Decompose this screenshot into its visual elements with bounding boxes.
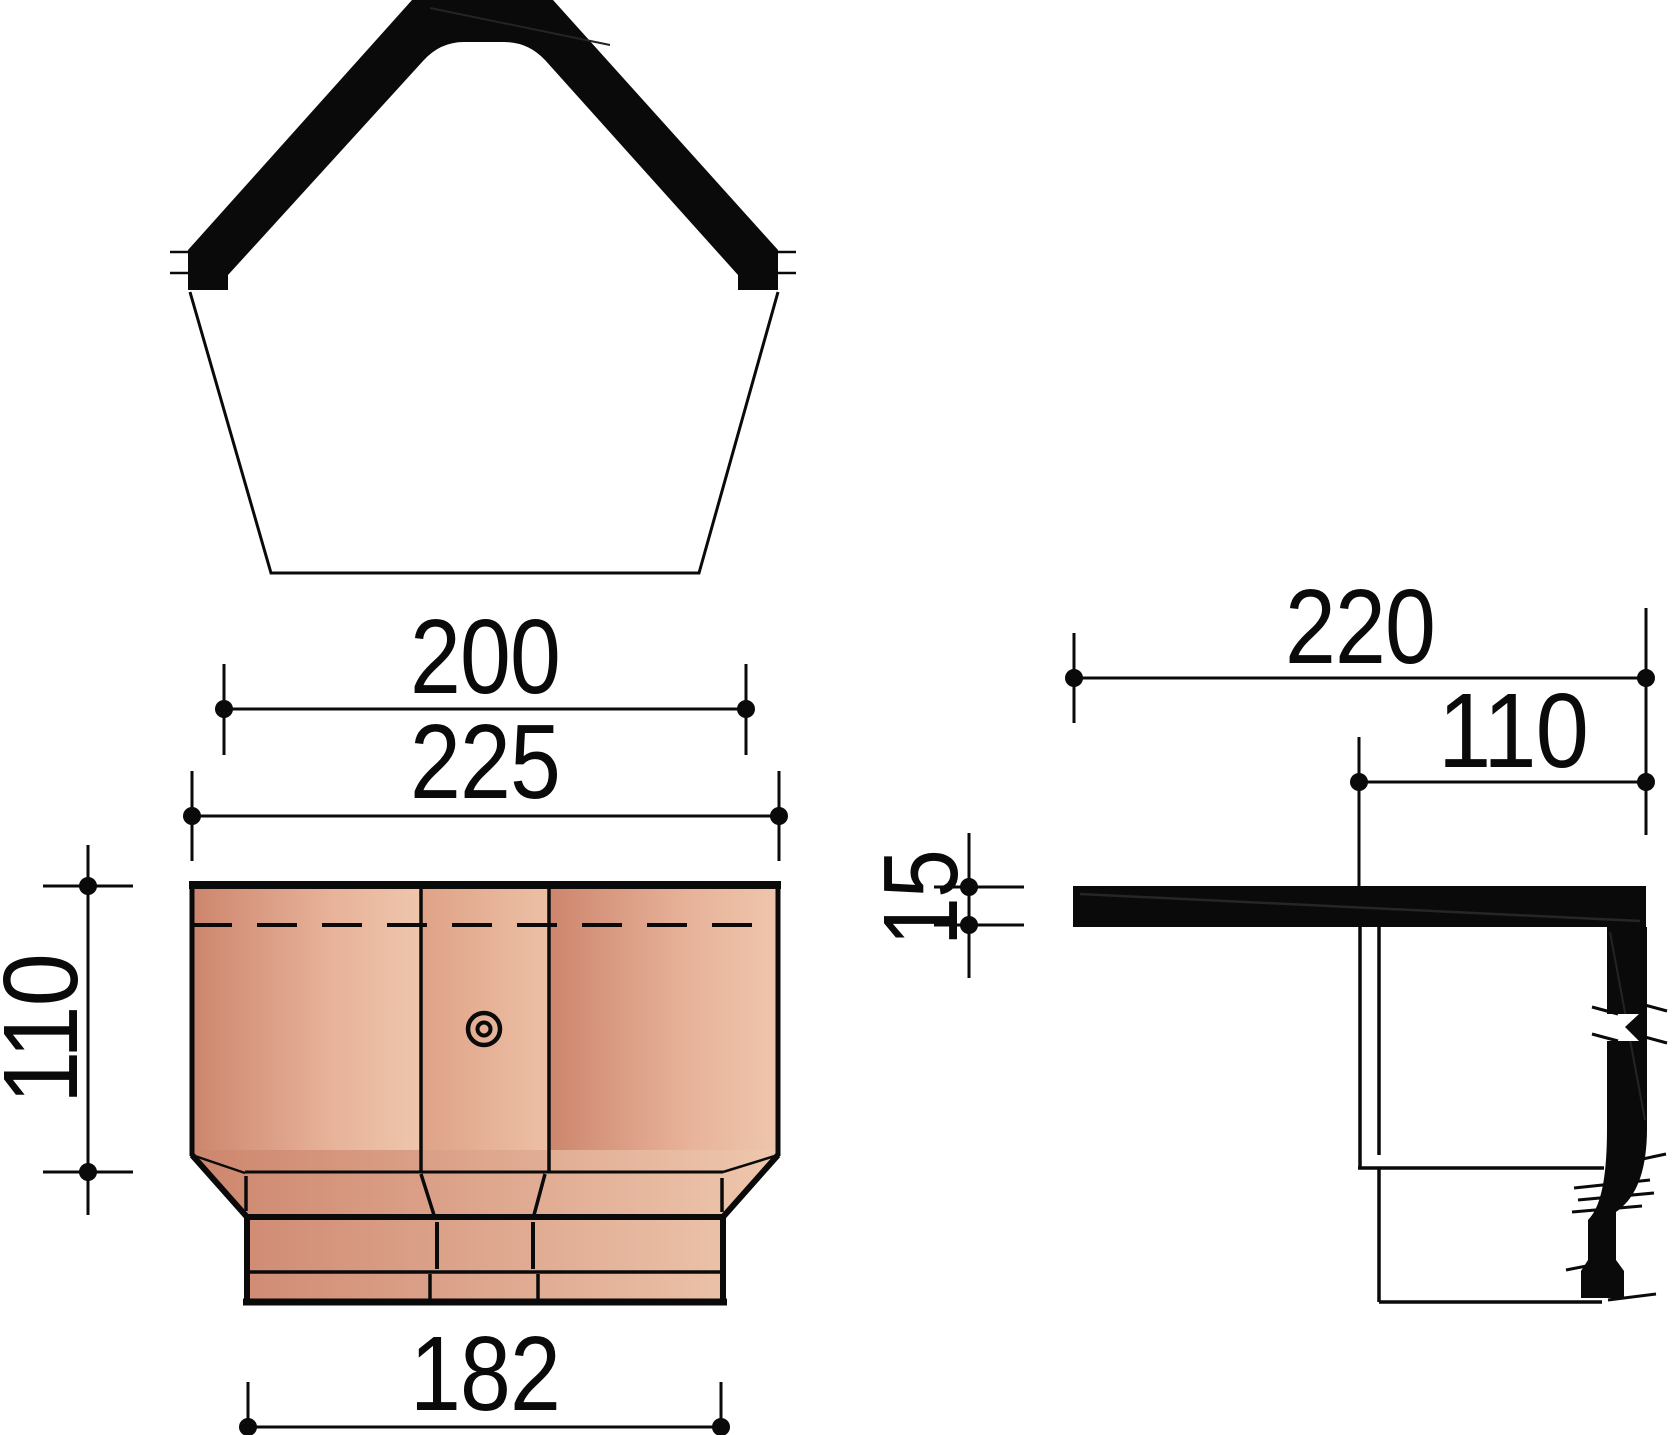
capping-end-ticks (170, 252, 796, 273)
dimension-label-220: 220 (1285, 568, 1435, 686)
dimension-dot (239, 1418, 257, 1435)
drawing-sheet: 200 225 110 (0, 0, 1674, 1435)
front-view (185, 880, 785, 1303)
dim-side-inner-depth: 110 (1350, 672, 1655, 890)
cross-section-body-outline (190, 292, 778, 573)
dimension-dot (1637, 773, 1655, 791)
dimension-dot (79, 1163, 97, 1181)
dimension-dot (1350, 773, 1368, 791)
front-view-fill (185, 880, 785, 1302)
dim-front-overall-width: 225 (183, 703, 788, 861)
dimension-dot (79, 877, 97, 895)
dimension-dot (1065, 669, 1083, 687)
side-view (1073, 886, 1667, 1302)
technical-drawing: 200 225 110 (0, 0, 1674, 1435)
cross-section-view (170, 0, 796, 573)
dimension-label-200: 200 (410, 598, 560, 716)
dimension-label-15: 15 (862, 850, 980, 946)
side-right-band (1581, 927, 1647, 1298)
dimension-dot (737, 700, 755, 718)
dimension-label-225: 225 (410, 703, 560, 821)
dimension-label-182: 182 (410, 1315, 560, 1433)
dim-front-bottom-width: 182 (239, 1315, 730, 1435)
dim-side-thickness: 15 (862, 833, 1024, 978)
dimension-label-110-front: 110 (0, 954, 100, 1104)
dimension-dot (215, 700, 233, 718)
dimension-dot (183, 807, 201, 825)
dim-front-height: 110 (0, 845, 133, 1215)
cross-section-capping-band (188, 0, 778, 290)
dimension-dot (1637, 669, 1655, 687)
dimension-dot (770, 807, 788, 825)
dimension-dot (712, 1418, 730, 1435)
dimension-label-110-side: 110 (1438, 672, 1588, 790)
